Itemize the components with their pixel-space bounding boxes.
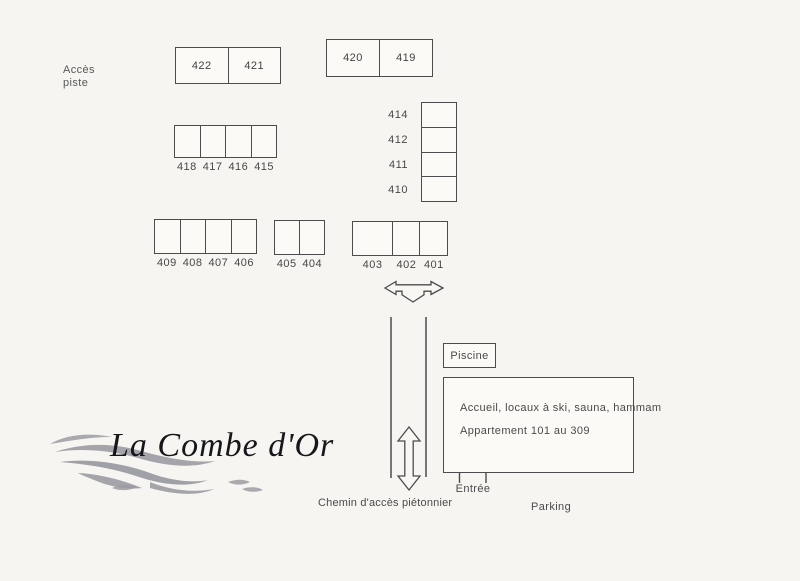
block-420-419: 420419	[326, 39, 433, 77]
block-422-421: 422421	[175, 47, 281, 84]
unit-cell-421: 421	[229, 48, 281, 83]
unit-cell-406	[232, 220, 257, 253]
unit-label-401: 401	[420, 259, 448, 271]
unit-cell-408	[181, 220, 207, 253]
unit-cell-412	[422, 128, 456, 153]
block-414-410: 414412411410	[385, 102, 457, 202]
unit-cell-417	[201, 126, 227, 157]
unit-cell-418	[175, 126, 201, 157]
block-418-415: 418417416415	[174, 125, 277, 173]
unit-label-410: 410	[385, 177, 408, 202]
unit-cell-403	[353, 222, 393, 255]
unit-cell-420: 420	[327, 40, 380, 76]
unit-label-407: 407	[206, 257, 232, 269]
unit-cell-405	[275, 221, 300, 254]
unit-label-415: 415	[251, 161, 277, 173]
unit-label-411: 411	[385, 152, 408, 177]
unit-label-405: 405	[274, 258, 300, 270]
unit-cell-422: 422	[176, 48, 229, 83]
unit-cell-415	[252, 126, 277, 157]
unit-cell-411	[422, 153, 456, 178]
site-plan: 4224214204194184174164154144124114104094…	[0, 0, 800, 581]
unit-cell-401	[420, 222, 447, 255]
unit-cell-407	[206, 220, 232, 253]
crossing-arrow-icon	[385, 282, 443, 303]
logo-text: La Combe d'Or	[110, 427, 334, 465]
entrance-label: Entrée	[450, 483, 496, 495]
main-building-box: Accueil, locaux à ski, sauna, hammam App…	[443, 377, 634, 473]
unit-label-408: 408	[180, 257, 206, 269]
unit-label-402: 402	[393, 259, 420, 271]
block-403-401: 403402401	[352, 221, 448, 271]
acces-piste-line1: Accès	[63, 64, 95, 77]
building-apartments-label: Appartement 101 au 309	[460, 425, 625, 437]
unit-label-417: 417	[200, 161, 226, 173]
unit-label-416: 416	[226, 161, 252, 173]
path-direction-arrow-icon	[398, 427, 420, 490]
unit-cell-404	[300, 221, 324, 254]
parking-label: Parking	[531, 501, 571, 513]
unit-label-406: 406	[231, 257, 257, 269]
unit-label-412: 412	[385, 127, 408, 152]
block-409-406: 409408407406	[154, 219, 257, 269]
block-405-404: 405404	[274, 220, 325, 270]
unit-label-409: 409	[154, 257, 180, 269]
unit-label-414: 414	[385, 102, 408, 127]
unit-cell-414	[422, 103, 456, 128]
unit-label-404: 404	[300, 258, 326, 270]
unit-cell-419: 419	[380, 40, 432, 76]
unit-cell-409	[155, 220, 181, 253]
unit-cell-410	[422, 177, 456, 201]
unit-cell-416	[226, 126, 252, 157]
pool-box: Piscine	[443, 343, 496, 368]
pool-label: Piscine	[450, 350, 488, 362]
unit-cell-402	[393, 222, 420, 255]
logo: La Combe d'Or	[50, 425, 350, 505]
acces-piste-label: Accès piste	[63, 64, 95, 90]
acces-piste-line2: piste	[63, 77, 95, 90]
unit-label-403: 403	[352, 259, 393, 271]
unit-label-418: 418	[174, 161, 200, 173]
building-services-label: Accueil, locaux à ski, sauna, hammam	[460, 402, 625, 414]
